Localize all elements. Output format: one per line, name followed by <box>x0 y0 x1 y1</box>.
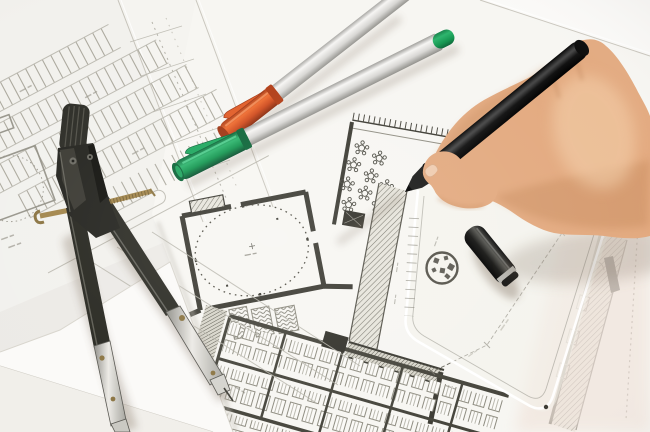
light-overlay <box>0 0 650 432</box>
photo-architect-workspace: Close-up photograph of an architect's wo… <box>0 0 650 432</box>
